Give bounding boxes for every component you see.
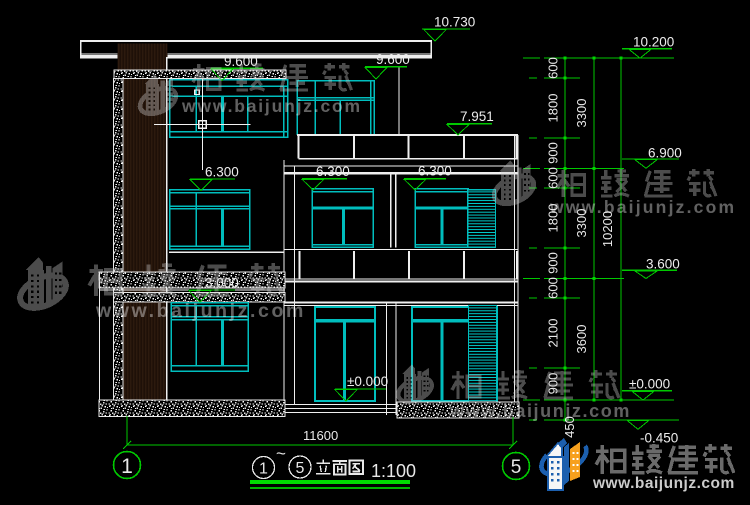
svg-text:1: 1 <box>259 461 268 478</box>
svg-text:2100: 2100 <box>546 319 561 348</box>
svg-text:6.300: 6.300 <box>205 165 239 180</box>
svg-text:7.951: 7.951 <box>460 109 494 124</box>
svg-text:3.600: 3.600 <box>646 257 680 272</box>
svg-text:6.300: 6.300 <box>316 164 350 179</box>
svg-text:10.730: 10.730 <box>434 15 475 30</box>
svg-text:6.900: 6.900 <box>648 146 682 161</box>
svg-text:1:100: 1:100 <box>371 461 416 481</box>
svg-text:www.baijunjz.com: www.baijunjz.com <box>549 197 736 217</box>
svg-text:www.baijunjz.com: www.baijunjz.com <box>592 475 735 492</box>
svg-text:www.baijunjz.com: www.baijunjz.com <box>181 96 362 116</box>
svg-text:9.600: 9.600 <box>376 52 410 67</box>
svg-text:1: 1 <box>121 455 133 478</box>
svg-text:3300: 3300 <box>574 99 589 128</box>
svg-text:900: 900 <box>546 142 561 164</box>
svg-text:600: 600 <box>546 57 561 79</box>
svg-text:-0.450: -0.450 <box>640 431 678 446</box>
svg-text:11600: 11600 <box>303 428 338 443</box>
svg-text:5: 5 <box>296 460 305 477</box>
svg-text:~: ~ <box>276 444 286 463</box>
svg-text:5: 5 <box>511 457 522 478</box>
svg-text:±0.000: ±0.000 <box>347 374 388 389</box>
svg-text:600: 600 <box>546 277 561 299</box>
svg-text:6.300: 6.300 <box>418 164 452 179</box>
svg-text:www.baijunjz.com: www.baijunjz.com <box>449 401 631 421</box>
svg-text:10.200: 10.200 <box>633 35 674 50</box>
svg-text:900: 900 <box>546 252 561 274</box>
svg-text:www.baijunjz.com: www.baijunjz.com <box>95 300 306 322</box>
svg-text:1800: 1800 <box>546 94 561 123</box>
svg-text:3600: 3600 <box>574 325 589 354</box>
svg-text:±0.000: ±0.000 <box>629 377 670 392</box>
